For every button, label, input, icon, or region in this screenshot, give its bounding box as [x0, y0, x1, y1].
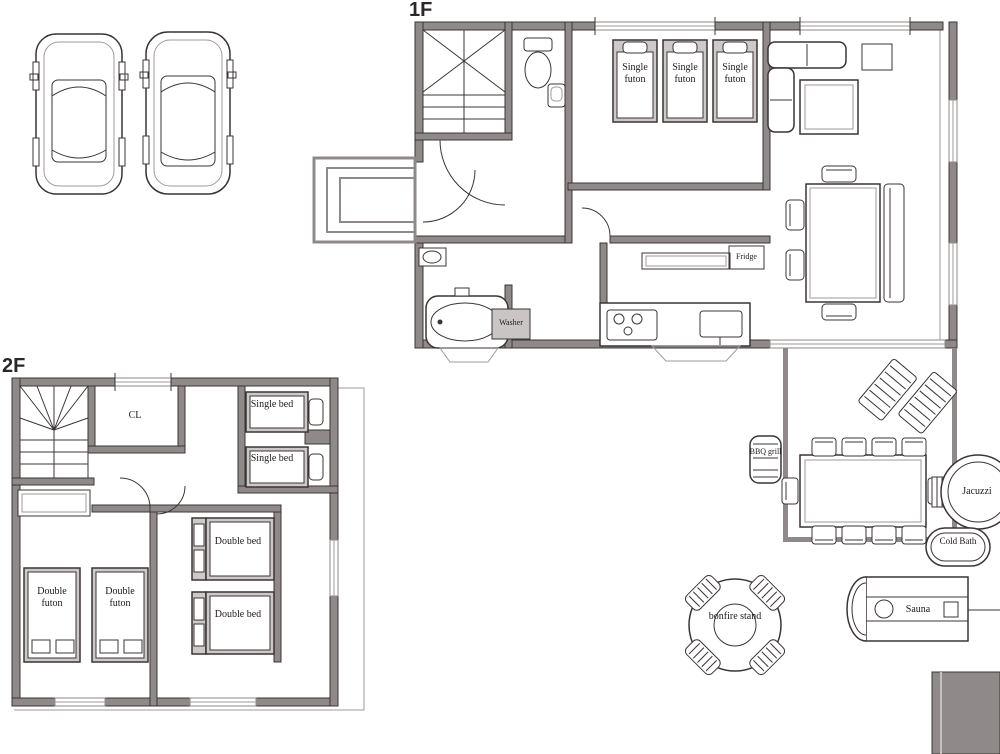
kitchen-back-counter [642, 253, 730, 269]
wall-bedroom-bottom [568, 183, 770, 190]
car-1 [30, 34, 128, 194]
wall-2f-center-vertical [150, 505, 157, 706]
floor-plan-canvas: 1F 2F Single futon Single futon Single f… [0, 0, 1000, 754]
wall-2f-left [12, 378, 20, 706]
floor-1f-label: 1F [409, 0, 432, 20]
double-futon-2 [92, 568, 148, 662]
bonfire-stand-label: bonfire stand [707, 611, 763, 623]
sauna-stove [875, 600, 893, 618]
double-bed-2 [192, 592, 274, 654]
wall-closet-bottom [88, 446, 185, 453]
wall-bed-nook-left [238, 386, 245, 492]
wall-stair-right [88, 386, 95, 452]
double-futon-1 [24, 568, 80, 662]
cold-bath-label: Cold Bath [934, 536, 982, 546]
fridge-label: Fridge [729, 253, 764, 261]
plan-drawing [0, 0, 1000, 754]
double-futon-label-1: Double futon [26, 586, 78, 609]
wall-2f-center-horizontal [92, 505, 157, 512]
double-bed-label-2b: Double bed [212, 609, 264, 621]
wall-2f-top [12, 378, 338, 386]
sauna-window [944, 602, 958, 617]
bedroom-door-arc [582, 208, 610, 236]
side-cabinet [862, 44, 892, 70]
jacuzzi-label: Jacuzzi [946, 486, 1000, 498]
dining-table-1f [806, 184, 880, 302]
single-bed-label-1: Single bed [249, 399, 295, 411]
floor-2f-label: 2F [2, 356, 25, 376]
entrance-door-arc [423, 170, 475, 222]
bbq-grill-label: BBQ grill [749, 448, 782, 456]
single-futon-label-1: Single futon [615, 62, 655, 85]
kitchen-counter [600, 303, 750, 346]
structure-block [932, 672, 1000, 754]
single-futon-label-3: Single futon [715, 62, 755, 85]
door-arc-2f-hall [120, 478, 150, 508]
double-bed-label-1: Double bed [212, 536, 264, 548]
stove [607, 310, 657, 340]
entrance-porch-steps [314, 158, 415, 242]
wall-stair-toilet [505, 22, 512, 140]
cold-bath [926, 528, 990, 566]
single-bed-label-2: Single bed [249, 453, 295, 465]
living-table [800, 80, 858, 134]
kitchen-sink [700, 311, 742, 337]
staircase-1f [423, 30, 505, 133]
wall-kitchen-left [600, 243, 607, 308]
sauna-label: Sauna [894, 604, 942, 616]
washbasin-1f [419, 248, 446, 266]
terrace-wall-left [783, 348, 788, 542]
outdoor-table [800, 455, 926, 527]
wall-below-stairs-2f [12, 478, 94, 485]
single-bed-1 [246, 392, 323, 432]
car-2 [140, 32, 236, 194]
single-futon-label-2: Single futon [665, 62, 705, 85]
desk-2f [18, 490, 90, 516]
wall-below-stairs [415, 133, 512, 140]
washer-label: Washer [492, 319, 530, 327]
wall-corridor-left [415, 236, 565, 243]
double-futon-label-2: Double futon [94, 586, 146, 609]
bath-step [440, 348, 498, 362]
bonfire-stand [683, 573, 786, 676]
wall-bedroom-left [565, 22, 572, 243]
toilet-1f [524, 38, 565, 107]
wall-bedroom2-right [274, 512, 281, 662]
wall-1f-left-upper [415, 22, 423, 162]
closet-label: CL [123, 410, 147, 422]
floor-2f-plan [12, 373, 364, 710]
wall-corridor-right [610, 236, 770, 243]
wall-closet-right [178, 386, 185, 452]
hall-door-arc [440, 140, 505, 205]
staircase-2f [20, 386, 88, 478]
bbq-grill [750, 436, 781, 483]
double-bed-1 [192, 518, 274, 580]
terrace [683, 348, 1000, 754]
